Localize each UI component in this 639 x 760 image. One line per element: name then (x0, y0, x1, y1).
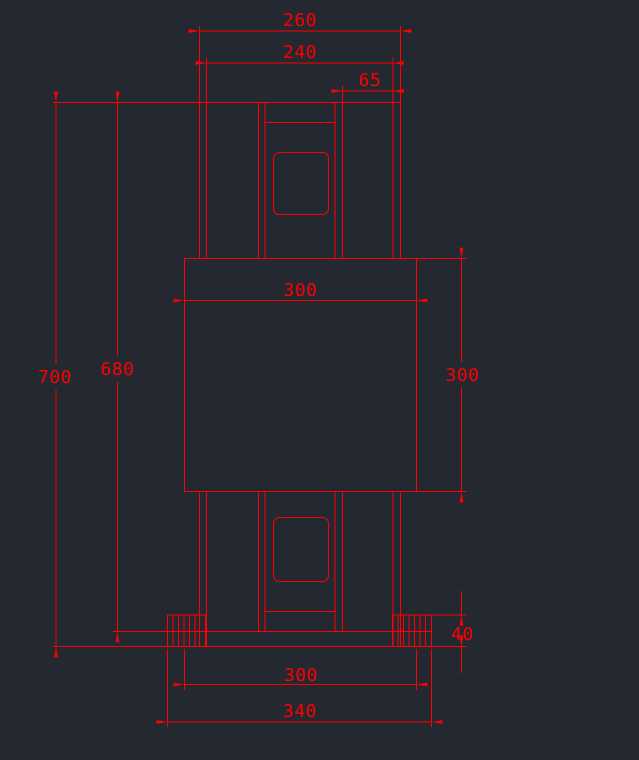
dim-label-300-body-height: 300 (445, 365, 479, 386)
dim-body-width: 300 (185, 280, 417, 301)
part-base-plate (53, 632, 467, 647)
cad-viewport[interactable]: 260 240 65 300 300 700 680 40 (0, 0, 639, 760)
dim-foot-height: 40 (451, 591, 474, 673)
cad-drawing-canvas[interactable]: 260 240 65 300 300 700 680 40 (0, 0, 639, 760)
dim-label-40: 40 (451, 624, 474, 645)
dim-top-outer-width: 260 (200, 10, 401, 31)
dim-label-240: 240 (283, 42, 317, 63)
dim-height-to-base-top: 680 (100, 103, 134, 632)
dim-base-inner-width: 300 (185, 649, 417, 690)
dim-label-680: 680 (100, 359, 134, 380)
dim-top-inner-width: 240 (207, 42, 394, 63)
dim-label-300-body-width: 300 (283, 280, 317, 301)
dim-label-65: 65 (359, 70, 382, 91)
dim-label-700: 700 (38, 367, 72, 388)
bottom-center-opening (274, 518, 329, 582)
dim-top-right-offset: 65 (343, 70, 394, 91)
dim-overall-height: 700 (38, 103, 72, 647)
dim-label-340: 340 (283, 701, 317, 722)
dim-body-height: 300 (417, 259, 480, 492)
dim-base-outer-width: 340 (168, 649, 432, 727)
part-bottom-column (200, 492, 401, 647)
top-center-opening (274, 153, 329, 215)
dim-label-260: 260 (283, 10, 317, 31)
part-top-column (53, 26, 401, 259)
dim-label-300-base: 300 (284, 665, 318, 686)
